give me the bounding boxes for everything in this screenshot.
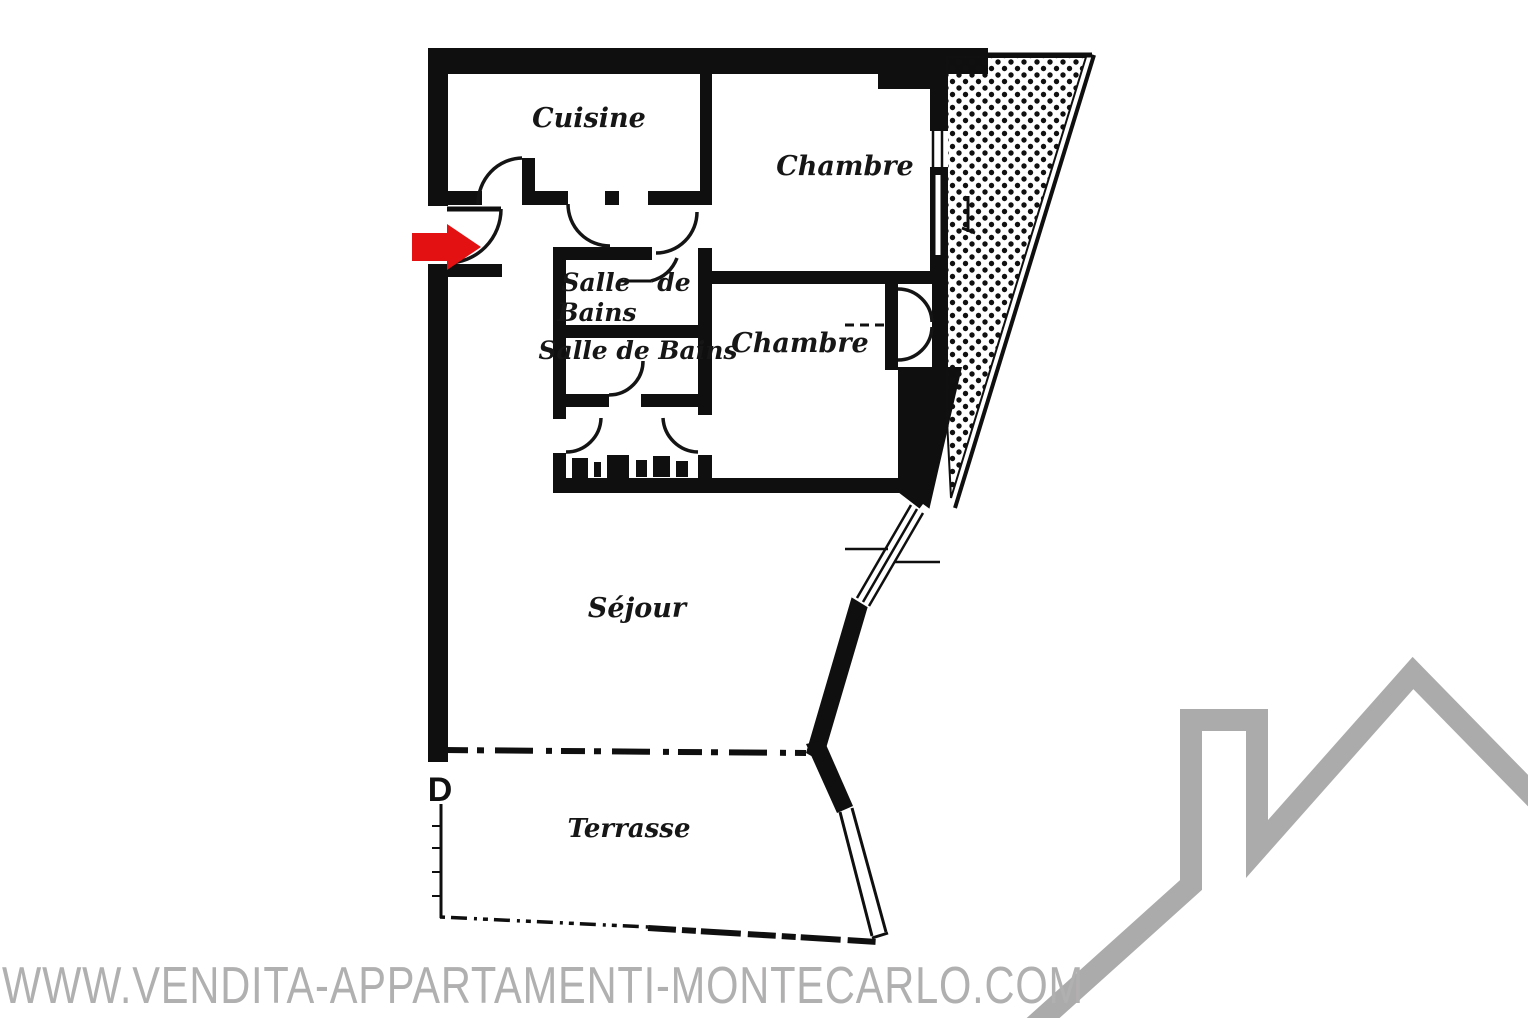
watermark-url: WWW.VENDITA-APPARTAMENTI-MONTECARLO.COM: [2, 956, 1084, 1016]
wall-segment: [428, 48, 988, 74]
wall-segment: [806, 740, 853, 813]
closet-door-arc: [898, 327, 932, 360]
room-label-bath1-salle: Salle: [561, 268, 630, 297]
common-area-hatched: [947, 55, 1094, 508]
wall-segment: [700, 271, 947, 284]
room-label-chambre-1: Chambre: [776, 151, 913, 182]
wall-segment: [534, 191, 568, 205]
terrace-right-line: [840, 812, 872, 936]
bath2-door-arc: [609, 361, 643, 395]
wall-segment: [932, 284, 947, 370]
terrace-right-line: [852, 808, 886, 932]
wall-segment: [522, 158, 535, 205]
stipple-zone: [947, 57, 1086, 498]
room-label-bath1-bains: Bains: [556, 298, 636, 327]
wall-segment: [806, 596, 868, 762]
room-label-bath2: Salle de Bains: [538, 336, 737, 365]
wall-segment: [553, 394, 609, 407]
wall-segment: [428, 264, 502, 277]
wall-segment: [553, 247, 652, 260]
terrace-door-marker: D: [428, 771, 453, 809]
terrace-boundaries: [432, 750, 888, 942]
vestibule-door-arc: [566, 418, 601, 452]
terrace-bottom-dashed: [648, 928, 878, 942]
window-line: [869, 513, 923, 606]
storage-hatch: [572, 455, 688, 479]
entrance-arrow-icon: [412, 224, 481, 270]
bedroom2-door-arc: [663, 418, 698, 452]
terrace-bottom-dashed: [440, 917, 648, 927]
wall-segment: [605, 191, 619, 205]
room-label-terrasse: Terrasse: [568, 814, 691, 844]
hatch-mark: [607, 455, 629, 479]
sejour-terrace-dashed-line: [444, 750, 806, 753]
hatch-mark: [653, 456, 670, 477]
wall-segment: [641, 394, 712, 407]
house-logo-icon: [1032, 673, 1528, 1018]
room-label-chambre-2: Chambre: [731, 328, 868, 359]
wall-segment: [885, 284, 898, 370]
terrace-corner-line: [872, 933, 888, 938]
room-label-sejour: Séjour: [588, 593, 688, 624]
wall-segment: [553, 407, 566, 419]
wall-segment: [930, 72, 947, 131]
room-label-cuisine: Cuisine: [532, 103, 646, 134]
bedroom1-door-arc: [656, 212, 697, 253]
hatch-mark: [636, 460, 647, 477]
hall-door-arc: [568, 204, 610, 246]
wall-segment: [428, 48, 448, 206]
floorplan-canvas: Cuisine Chambre Salle de Bains Salle de …: [0, 0, 1528, 1018]
hatch-mark: [594, 462, 601, 477]
room-label-bath1-de: de: [657, 268, 690, 297]
window-line: [863, 509, 917, 602]
hatch-mark: [572, 458, 588, 478]
wall-segment: [700, 72, 712, 205]
hatch-mark: [676, 461, 688, 477]
window-gap: [851, 504, 934, 608]
wall-segment: [428, 266, 448, 762]
wall-segment: [553, 478, 900, 493]
kitchen-door-arc: [478, 158, 522, 204]
wall-segment: [878, 72, 938, 89]
closet-door-arc: [898, 289, 932, 322]
